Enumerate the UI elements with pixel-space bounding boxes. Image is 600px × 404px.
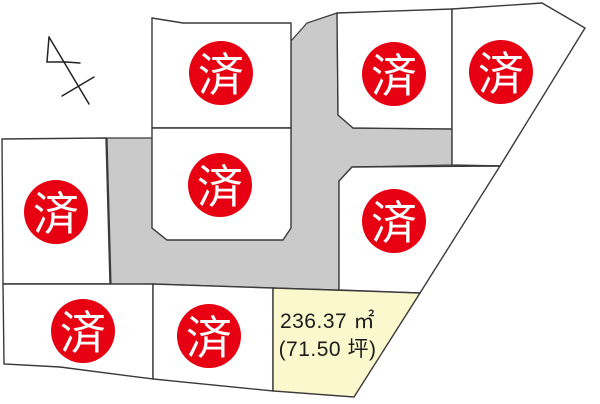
lot-center-sold-stamp-label: 済 [197, 160, 243, 214]
lot-left-sold-stamp-label: 済 [33, 187, 79, 241]
north-arrow-line-1 [49, 37, 89, 104]
lot-top-middle-sold-stamp-label: 済 [371, 49, 417, 103]
lot-available [273, 288, 420, 397]
north-arrow-line-2 [47, 37, 49, 62]
land-subdivision-map: 済済済済済済済済 236.37 ㎡ (71.50 坪) [0, 0, 600, 404]
lot-top-right-sold-stamp-label: 済 [478, 47, 524, 101]
north-arrow-line-4 [66, 62, 80, 63]
lot-bottom-center-sold-stamp-label: 済 [186, 311, 232, 365]
lot-bottom-left-sold-stamp-label: 済 [60, 306, 106, 360]
lot-top-center-sold-stamp-label: 済 [198, 48, 244, 102]
site-plan-svg: 済済済済済済済済 [0, 0, 600, 404]
north-arrow-line-5 [62, 77, 94, 96]
lot-right-middle-sold-stamp-label: 済 [371, 196, 417, 250]
